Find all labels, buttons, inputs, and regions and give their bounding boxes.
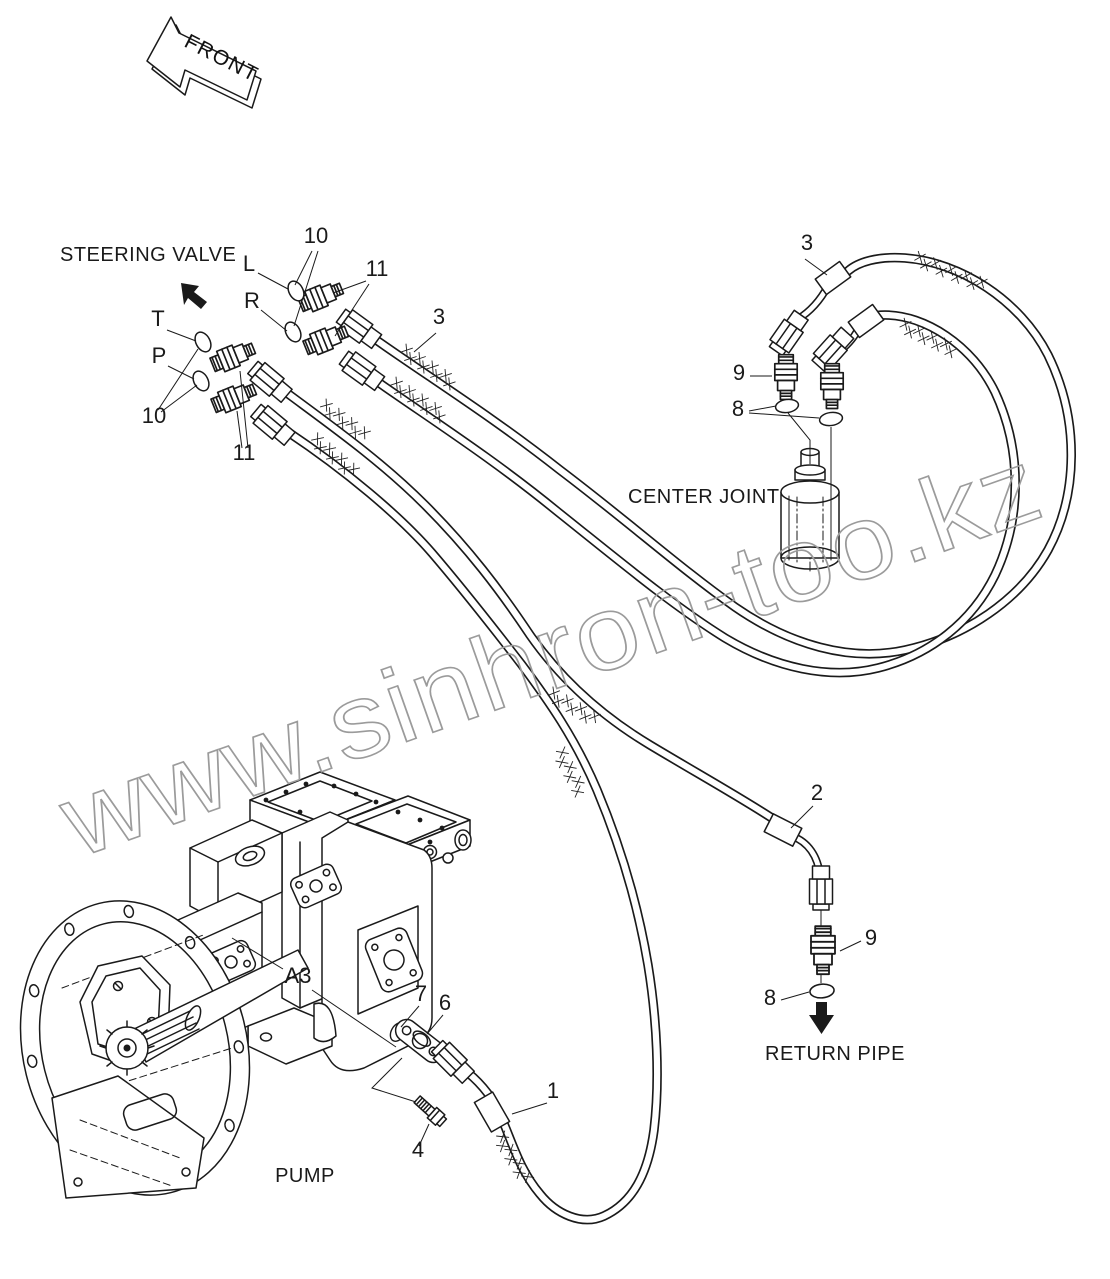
port-label-r: R (244, 288, 260, 313)
oring-10-p (190, 368, 212, 393)
callout-a3: A3 (285, 963, 312, 988)
steering-valve-direction-arrow (181, 283, 207, 309)
bolt-4 (412, 1094, 447, 1128)
callout-3-right: 3 (801, 230, 813, 255)
steering-valve-label: STEERING VALVE (60, 244, 236, 266)
callout-8-cj: 8 (732, 396, 744, 421)
callout-11-bottom: 11 (233, 440, 256, 465)
port-label-p: P (152, 343, 167, 368)
return-oring-8 (809, 983, 834, 999)
return-pipe-direction-arrow (809, 1002, 834, 1034)
return-adapter-9 (811, 926, 835, 974)
cj-oring-8-right (819, 411, 844, 427)
adapter-11-p (210, 379, 259, 416)
oring-10-r (282, 319, 304, 344)
callout-1: 1 (547, 1078, 559, 1103)
callout-8-return: 8 (764, 985, 776, 1010)
callout-4: 4 (412, 1137, 424, 1162)
hose-nut-p (249, 402, 297, 448)
oring-10-t (192, 329, 214, 354)
return-elbow-nut (810, 866, 833, 910)
cj-adapter-9-left (775, 355, 797, 400)
callout-9-return: 9 (865, 925, 877, 950)
pump-label: PUMP (275, 1165, 335, 1187)
port-label-t: T (151, 306, 164, 331)
adapter-11-r (302, 321, 351, 358)
piping-diagram-canvas: FRONT STEERING VALVE CENTER JOINT RETURN… (0, 0, 1110, 1279)
callout-3-left: 3 (433, 304, 445, 329)
callout-9-cj: 9 (733, 360, 745, 385)
return-elbow (764, 814, 820, 880)
callout-2: 2 (811, 780, 823, 805)
callout-11-top: 11 (366, 256, 389, 281)
center-joint-label: CENTER JOINT (628, 486, 780, 508)
port-label-l: L (243, 251, 255, 276)
callout-6: 6 (439, 990, 451, 1015)
parts-diagram-page: FRONT STEERING VALVE CENTER JOINT RETURN… (0, 0, 1110, 1279)
cj-oring-8-left (775, 398, 800, 414)
front-arrow: FRONT (147, 17, 262, 108)
callout-10-bottom: 10 (142, 403, 166, 428)
cj-adapter-9-right (821, 364, 843, 409)
adapter-11-t (209, 338, 258, 375)
callout-7: 7 (415, 981, 427, 1006)
bolt-flange-leader (372, 1058, 416, 1102)
callout-10-top: 10 (304, 223, 328, 248)
return-pipe-label: RETURN PIPE (765, 1043, 905, 1065)
